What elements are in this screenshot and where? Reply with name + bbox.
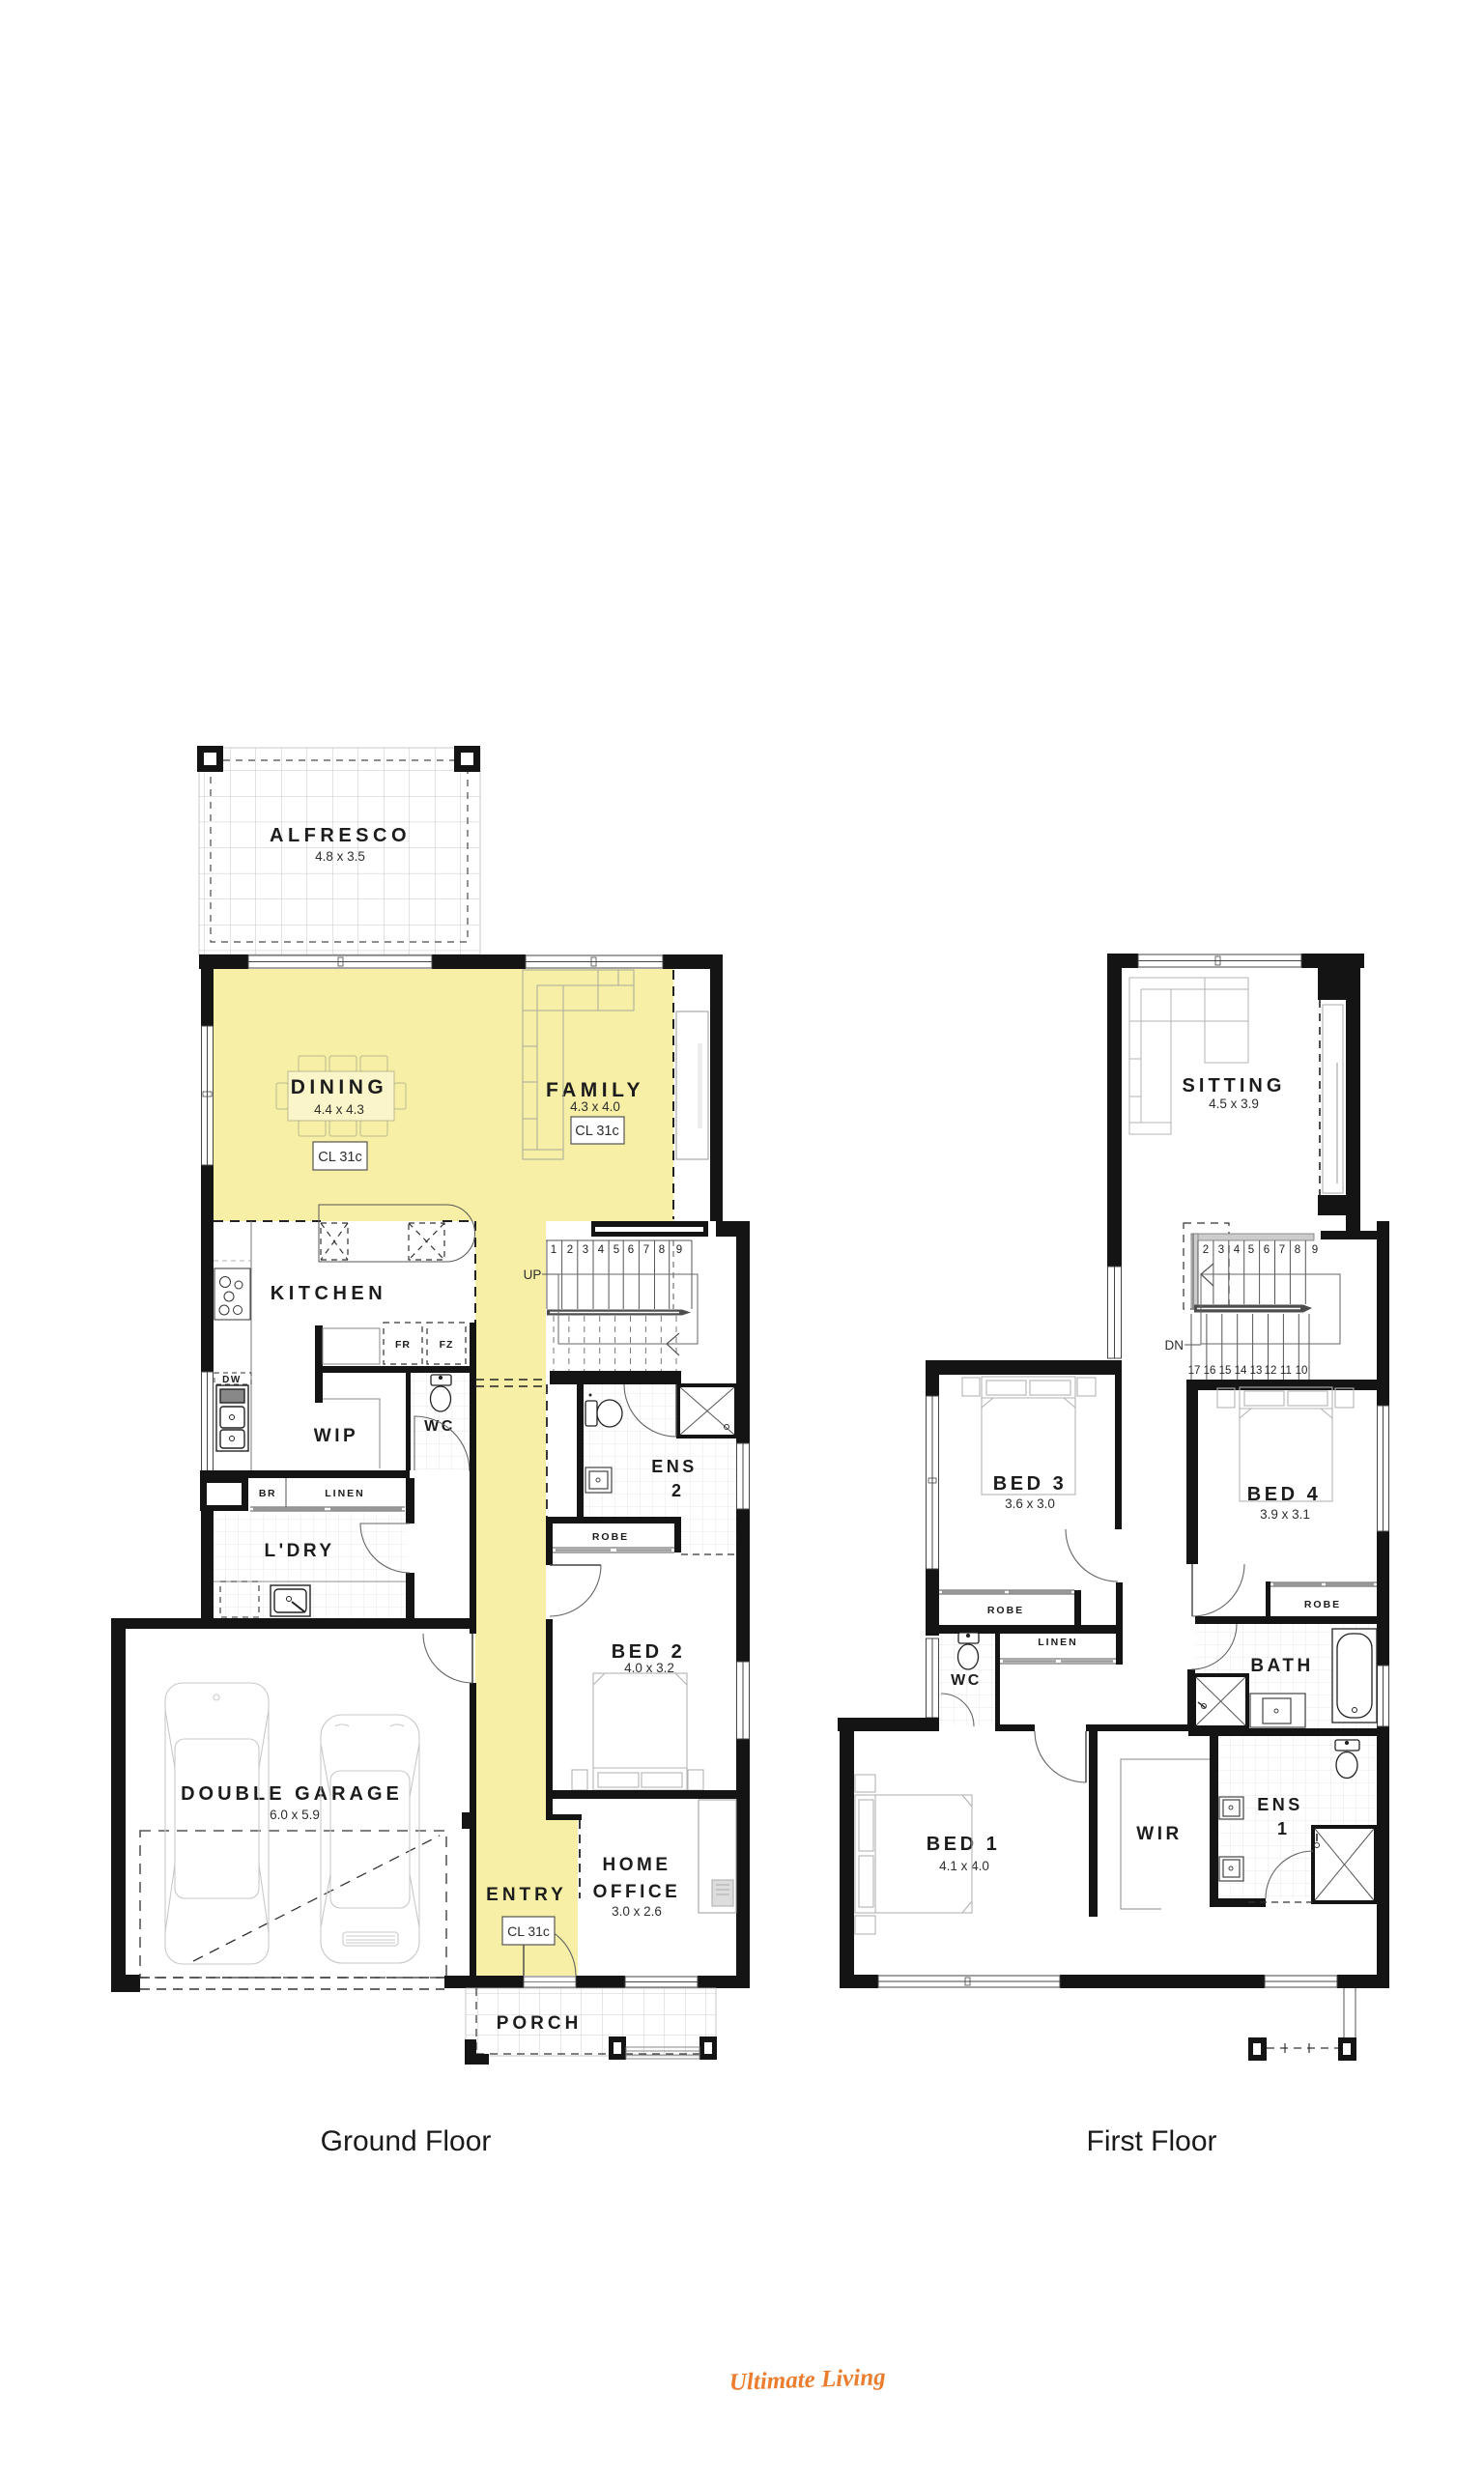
svg-text:4.5 x 3.9: 4.5 x 3.9 (1209, 1097, 1259, 1111)
svg-text:FR: FR (395, 1339, 411, 1351)
svg-text:CL 31c: CL 31c (318, 1150, 361, 1165)
svg-text:ALFRESCO: ALFRESCO (270, 825, 411, 846)
svg-text:17: 17 (1188, 1365, 1201, 1377)
svg-text:4.1 x 4.0: 4.1 x 4.0 (939, 1859, 989, 1873)
svg-text:LINEN: LINEN (1038, 1637, 1078, 1648)
svg-text:KITCHEN: KITCHEN (271, 1283, 386, 1304)
svg-text:4.4 x 4.3: 4.4 x 4.3 (314, 1102, 364, 1117)
svg-text:12: 12 (1265, 1365, 1277, 1377)
svg-text:DW: DW (222, 1375, 242, 1385)
svg-text:4.3 x 4.0: 4.3 x 4.0 (570, 1099, 620, 1114)
svg-text:13: 13 (1250, 1365, 1263, 1377)
svg-text:BED 2: BED 2 (612, 1641, 685, 1663)
svg-text:16: 16 (1204, 1365, 1216, 1377)
svg-text:CL 31c: CL 31c (507, 1923, 550, 1939)
svg-text:1: 1 (551, 1244, 556, 1256)
svg-text:WIP: WIP (314, 1426, 358, 1446)
svg-text:3.0 x 2.6: 3.0 x 2.6 (612, 1904, 662, 1919)
svg-text:6: 6 (1264, 1244, 1270, 1256)
svg-text:6.0 x 5.9: 6.0 x 5.9 (270, 1808, 320, 1822)
svg-text:3: 3 (583, 1244, 588, 1256)
svg-text:BATH: BATH (1250, 1656, 1313, 1676)
svg-text:ENTRY: ENTRY (486, 1885, 567, 1905)
svg-text:DINING: DINING (291, 1076, 388, 1098)
svg-text:LINEN: LINEN (325, 1488, 365, 1499)
svg-text:OFFICE: OFFICE (593, 1882, 681, 1902)
svg-text:8: 8 (1295, 1244, 1300, 1256)
svg-text:3.6 x 3.0: 3.6 x 3.0 (1005, 1496, 1055, 1511)
svg-text:Ultimate Living: Ultimate Living (728, 2364, 886, 2396)
svg-text:FZ: FZ (440, 1339, 454, 1351)
svg-text:9: 9 (1312, 1244, 1318, 1256)
svg-text:ENS: ENS (651, 1457, 698, 1476)
svg-text:BED 3: BED 3 (993, 1473, 1067, 1495)
svg-text:CL 31c: CL 31c (575, 1124, 618, 1139)
svg-text:Ground Floor: Ground Floor (321, 2125, 492, 2157)
svg-text:ROBE: ROBE (592, 1531, 629, 1543)
svg-text:8: 8 (659, 1244, 665, 1256)
svg-text:ROBE: ROBE (987, 1605, 1024, 1616)
svg-text:15: 15 (1219, 1365, 1232, 1377)
svg-text:ROBE: ROBE (1304, 1599, 1341, 1610)
svg-text:SITTING: SITTING (1183, 1075, 1286, 1097)
svg-text:WIR: WIR (1136, 1824, 1182, 1844)
svg-text:FAMILY: FAMILY (546, 1079, 644, 1101)
svg-text:2: 2 (671, 1481, 681, 1500)
svg-text:ENS: ENS (1257, 1795, 1303, 1814)
svg-text:11: 11 (1280, 1365, 1292, 1377)
svg-text:4: 4 (1234, 1244, 1241, 1256)
svg-text:DN: DN (1165, 1338, 1184, 1353)
svg-text:UP: UP (524, 1267, 542, 1282)
svg-text:9: 9 (676, 1244, 682, 1256)
svg-text:BED 1: BED 1 (927, 1834, 1000, 1855)
svg-text:14: 14 (1235, 1365, 1247, 1377)
svg-text:1: 1 (1277, 1819, 1287, 1838)
svg-text:2: 2 (567, 1244, 573, 1256)
svg-text:4: 4 (598, 1244, 605, 1256)
svg-text:7: 7 (1279, 1244, 1285, 1256)
svg-text:5: 5 (614, 1244, 619, 1256)
svg-text:3: 3 (1218, 1244, 1224, 1256)
svg-text:3.9 x 3.1: 3.9 x 3.1 (1260, 1507, 1310, 1522)
svg-text:6: 6 (628, 1244, 634, 1256)
svg-text:7: 7 (643, 1244, 649, 1256)
svg-text:L'DRY: L'DRY (264, 1541, 334, 1561)
svg-text:PORCH: PORCH (497, 2013, 583, 2034)
svg-text:WC: WC (424, 1418, 455, 1435)
svg-text:First Floor: First Floor (1087, 2125, 1217, 2157)
svg-text:10: 10 (1296, 1365, 1308, 1377)
svg-text:2: 2 (1203, 1244, 1209, 1256)
svg-text:5: 5 (1248, 1244, 1254, 1256)
svg-text:WC: WC (951, 1672, 982, 1689)
svg-text:HOME: HOME (603, 1855, 671, 1875)
svg-text:BR: BR (259, 1488, 276, 1499)
svg-text:BED 4: BED 4 (1247, 1484, 1321, 1505)
svg-text:4.8 x 3.5: 4.8 x 3.5 (315, 849, 365, 864)
svg-text:DOUBLE GARAGE: DOUBLE GARAGE (181, 1783, 403, 1805)
